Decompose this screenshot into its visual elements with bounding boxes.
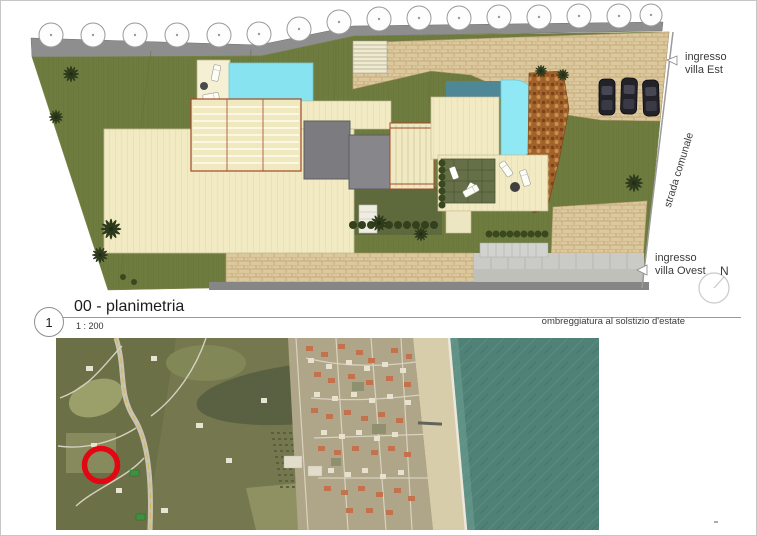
- sheet-number: 1: [45, 315, 52, 330]
- stair-pergola: [390, 123, 434, 189]
- parked-cars: [599, 78, 660, 117]
- roof-west-2: [349, 135, 391, 189]
- site-plan-drawing: [1, 1, 757, 311]
- print-mark: [714, 521, 718, 523]
- stairs-top: [353, 41, 387, 73]
- sheet-note: ombreggiatura al solstizio d'estate: [461, 316, 685, 327]
- aerial-location-map: [56, 338, 599, 530]
- sheet-title: 00 - planimetria: [74, 298, 184, 316]
- roof-west-1: [304, 121, 350, 179]
- sheet-number-badge: 1: [34, 307, 64, 337]
- drawing-sheet: ingresso villa Est strada comunale ingre…: [0, 0, 757, 536]
- label-entrance-east: ingresso villa Est: [685, 51, 727, 76]
- pool-west: [229, 63, 313, 101]
- stone-path: [226, 253, 474, 283]
- sheet-scale: 1 : 200: [76, 321, 104, 331]
- label-entrance-west: ingresso villa Ovest: [655, 252, 706, 277]
- steps: [480, 243, 548, 257]
- label-north: N: [720, 264, 729, 278]
- curb: [209, 282, 649, 290]
- pergola-west: [191, 99, 301, 171]
